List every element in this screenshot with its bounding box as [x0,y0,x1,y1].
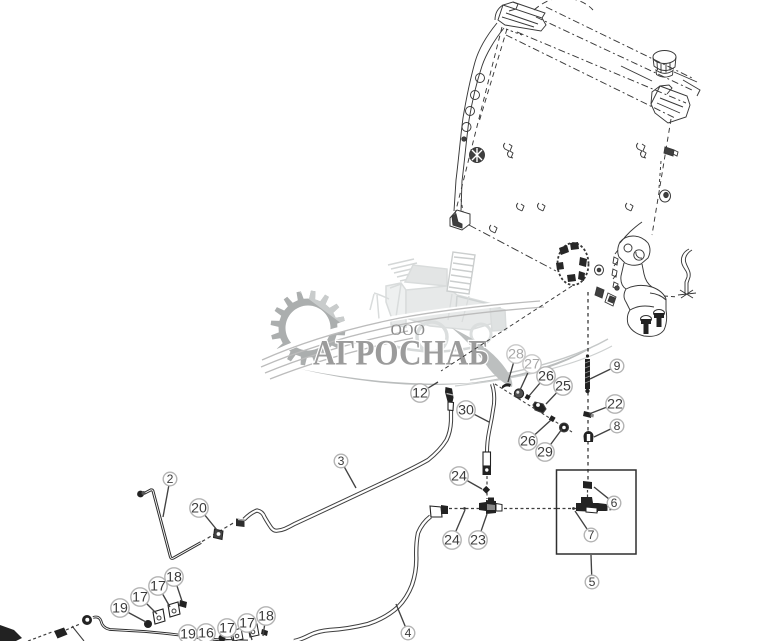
svg-text:23: 23 [470,533,486,549]
svg-text:29: 29 [537,445,553,461]
svg-text:6: 6 [611,496,618,510]
svg-text:2: 2 [167,472,174,486]
svg-text:26: 26 [538,369,554,385]
svg-text:АГРОСНАБ: АГРОСНАБ [313,332,489,372]
svg-text:8: 8 [614,419,621,433]
svg-text:18: 18 [258,609,274,625]
svg-text:9: 9 [614,359,621,373]
svg-text:25: 25 [555,379,571,395]
svg-text:17: 17 [239,616,255,632]
svg-text:26: 26 [520,434,536,450]
svg-text:5: 5 [589,575,596,589]
svg-text:30: 30 [458,403,474,419]
svg-text:3: 3 [338,454,345,468]
svg-text:17: 17 [150,579,166,595]
svg-text:7: 7 [588,528,595,542]
svg-text:20: 20 [191,501,207,517]
svg-text:17: 17 [219,621,235,637]
svg-text:16: 16 [198,626,214,641]
svg-text:4: 4 [405,626,412,640]
svg-text:19: 19 [180,627,196,641]
svg-text:24: 24 [444,533,460,549]
svg-text:24: 24 [451,469,467,485]
svg-text:19: 19 [112,601,128,617]
svg-text:28: 28 [508,347,524,363]
svg-text:22: 22 [607,397,623,413]
svg-text:17: 17 [132,590,148,606]
svg-text:12: 12 [412,386,428,402]
svg-text:18: 18 [166,570,182,586]
